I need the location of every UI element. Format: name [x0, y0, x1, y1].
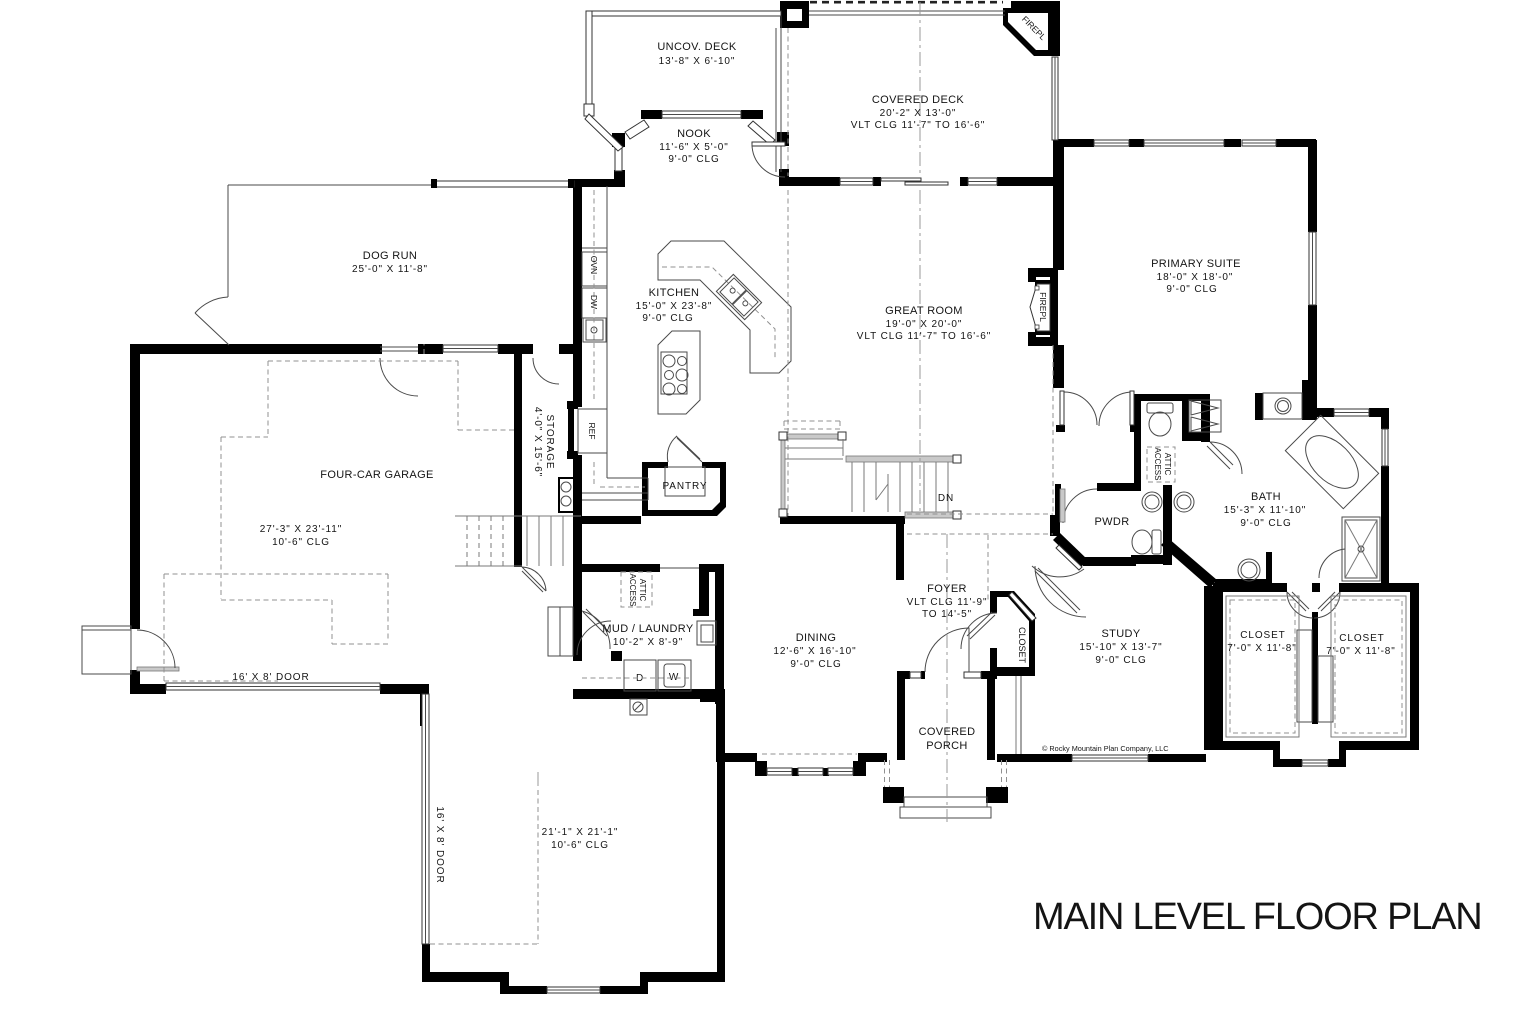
svg-text:4'-0" X 15'-6": 4'-0" X 15'-6"	[532, 407, 543, 477]
svg-text:ACCESS: ACCESS	[628, 574, 637, 607]
svg-text:CLOSET: CLOSET	[1017, 627, 1027, 664]
svg-text:15'-10" X 13'-7": 15'-10" X 13'-7"	[1079, 642, 1162, 653]
svg-text:CLOSET: CLOSET	[1240, 630, 1285, 641]
svg-text:16' X 8' DOOR: 16' X 8' DOOR	[434, 806, 445, 883]
svg-text:25'-0" X 11'-8": 25'-0" X 11'-8"	[352, 264, 428, 275]
svg-text:10'-6" CLG: 10'-6" CLG	[551, 840, 609, 851]
svg-text:9'-0" CLG: 9'-0" CLG	[1095, 655, 1146, 666]
svg-text:COVERED DECK: COVERED DECK	[872, 94, 965, 106]
svg-text:DINING: DINING	[796, 632, 837, 644]
svg-text:15'-3" X 11'-10": 15'-3" X 11'-10"	[1224, 505, 1306, 516]
svg-text:PWDR: PWDR	[1094, 516, 1129, 528]
svg-text:9'-0" CLG: 9'-0" CLG	[668, 154, 719, 165]
svg-text:BATH: BATH	[1251, 491, 1281, 503]
svg-text:© Rocky Mountain Plan Company,: © Rocky Mountain Plan Company, LLC	[1042, 744, 1169, 753]
svg-text:9'-0" CLG: 9'-0" CLG	[642, 313, 693, 324]
svg-text:REF: REF	[587, 423, 597, 440]
svg-text:9'-0" CLG: 9'-0" CLG	[1240, 518, 1291, 529]
svg-text:DN: DN	[938, 493, 954, 504]
svg-text:PRIMARY SUITE: PRIMARY SUITE	[1151, 258, 1241, 270]
svg-text:STUDY: STUDY	[1101, 628, 1140, 640]
svg-text:27'-3" X 23'-11": 27'-3" X 23'-11"	[260, 524, 342, 535]
svg-text:COVERED: COVERED	[919, 726, 976, 738]
svg-text:VLT CLG 11'-9": VLT CLG 11'-9"	[907, 597, 988, 608]
svg-text:15'-0" X 23'-8": 15'-0" X 23'-8"	[636, 301, 713, 312]
svg-text:9'-0" CLG: 9'-0" CLG	[790, 659, 841, 670]
svg-text:NOOK: NOOK	[677, 128, 711, 140]
svg-text:18'-0" X 18'-0": 18'-0" X 18'-0"	[1157, 272, 1234, 283]
svg-text:19'-0" X 20'-0": 19'-0" X 20'-0"	[886, 319, 963, 330]
svg-text:21'-1" X 21'-1": 21'-1" X 21'-1"	[542, 827, 619, 838]
svg-text:MUD / LAUNDRY: MUD / LAUNDRY	[602, 623, 693, 635]
svg-text:TO 14'-5": TO 14'-5"	[922, 609, 972, 620]
svg-text:10'-2" X 8'-9": 10'-2" X 8'-9"	[613, 637, 683, 648]
svg-text:16' X 8' DOOR: 16' X 8' DOOR	[232, 672, 309, 683]
svg-text:STORAGE: STORAGE	[544, 414, 555, 469]
svg-text:PORCH: PORCH	[926, 740, 967, 752]
svg-text:GREAT ROOM: GREAT ROOM	[885, 305, 963, 317]
svg-text:DOG RUN: DOG RUN	[363, 250, 417, 262]
svg-text:12'-6" X 16'-10": 12'-6" X 16'-10"	[773, 646, 856, 657]
svg-text:CLOSET: CLOSET	[1339, 633, 1384, 644]
svg-text:FOUR-CAR GARAGE: FOUR-CAR GARAGE	[320, 469, 433, 481]
svg-text:KITCHEN: KITCHEN	[649, 287, 700, 299]
svg-text:MAIN LEVEL FLOOR PLAN: MAIN LEVEL FLOOR PLAN	[1033, 896, 1482, 938]
svg-text:7'-0" X 11'-8": 7'-0" X 11'-8"	[1326, 646, 1395, 657]
svg-text:DW: DW	[589, 295, 599, 309]
svg-text:ATTIC: ATTIC	[1163, 453, 1172, 476]
svg-text:7'-0" X 11'-8": 7'-0" X 11'-8"	[1227, 643, 1296, 654]
svg-text:FOYER: FOYER	[927, 583, 967, 595]
svg-text:11'-6" X 5'-0": 11'-6" X 5'-0"	[659, 142, 728, 153]
svg-text:20'-2" X 13'-0": 20'-2" X 13'-0"	[880, 108, 957, 119]
svg-text:9'-0" CLG: 9'-0" CLG	[1166, 284, 1217, 295]
svg-text:VLT CLG 11'-7" TO 16'-6": VLT CLG 11'-7" TO 16'-6"	[851, 120, 985, 131]
svg-text:PANTRY: PANTRY	[662, 481, 707, 492]
svg-text:VLT CLG 11'-7" TO 16'-6": VLT CLG 11'-7" TO 16'-6"	[857, 331, 991, 342]
svg-text:ACCESS: ACCESS	[1153, 448, 1162, 481]
svg-text:13'-8" X 6'-10": 13'-8" X 6'-10"	[659, 56, 736, 67]
svg-text:FIREPL: FIREPL	[1038, 292, 1048, 322]
svg-text:OVN: OVN	[589, 256, 599, 274]
svg-text:ATTIC: ATTIC	[638, 579, 647, 602]
svg-text:UNCOV. DECK: UNCOV. DECK	[657, 41, 737, 53]
svg-text:10'-6" CLG: 10'-6" CLG	[272, 537, 330, 548]
